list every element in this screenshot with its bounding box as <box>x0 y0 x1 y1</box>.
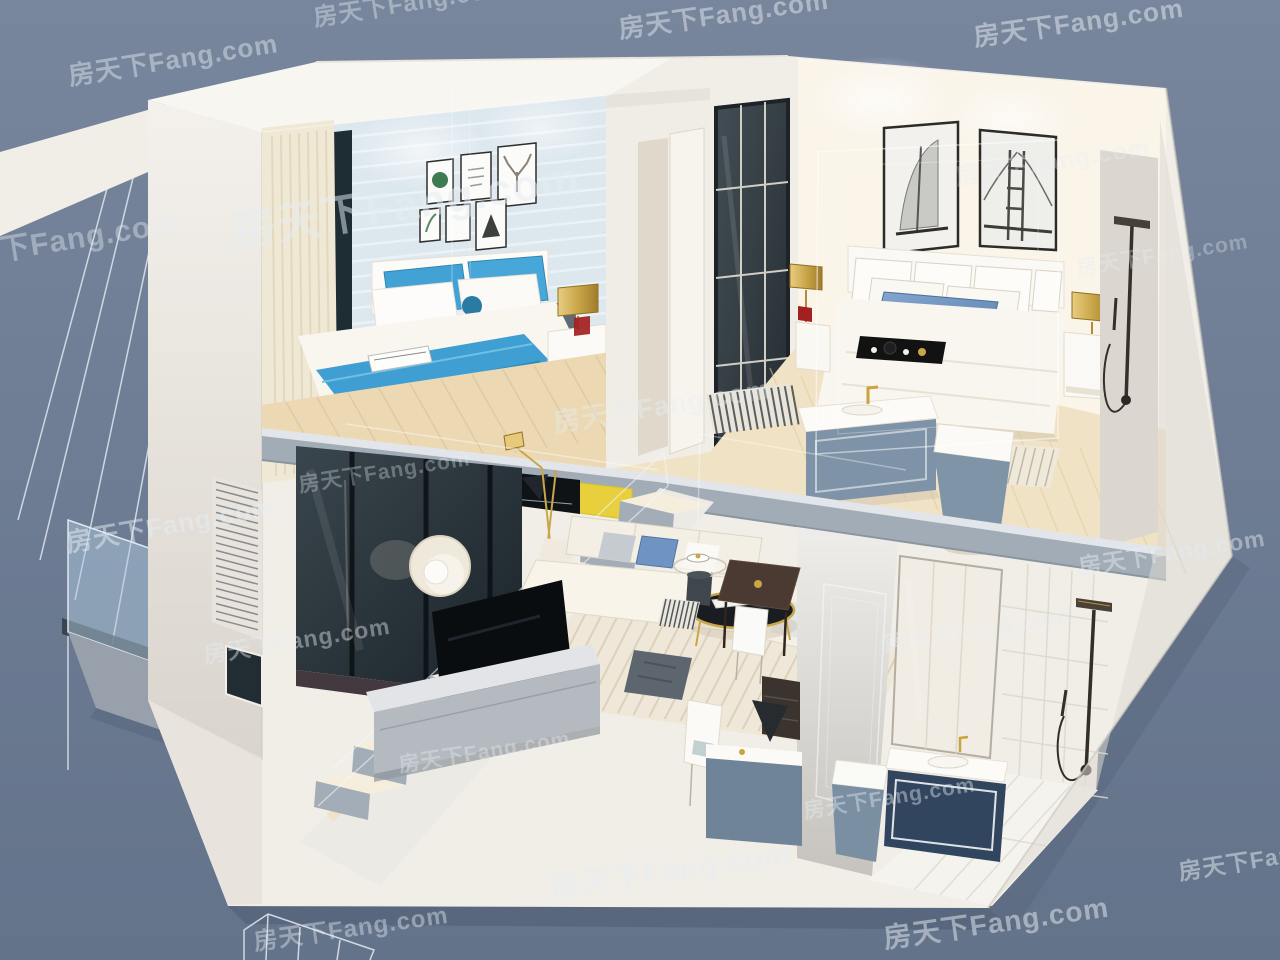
white-dining-chair <box>732 606 768 656</box>
shower-valve <box>1121 395 1131 405</box>
gold-bowl <box>754 580 762 588</box>
gold-item <box>739 749 745 755</box>
counter-front <box>706 758 802 846</box>
scene-svg: 房天下Fang.com 房天下Fang.com 房天下Fang.com 房天下F… <box>0 0 1280 960</box>
stool-top <box>687 571 711 579</box>
teacup <box>903 349 909 355</box>
blue-cushion <box>636 536 678 568</box>
chair-pillow <box>424 560 448 584</box>
red-glass <box>574 316 590 336</box>
basin <box>928 756 968 768</box>
nightstand <box>796 322 830 372</box>
red-glass <box>798 306 812 322</box>
teacup <box>871 347 877 353</box>
screenshot-root: 房天下Fang.com 房天下Fang.com 房天下Fang.com 房天下F… <box>0 0 1280 960</box>
artwork-bridge <box>980 130 1056 250</box>
ensuite-vanity <box>798 387 940 512</box>
fruit <box>696 554 701 559</box>
brass-drum-lamp <box>558 284 598 316</box>
hand-shower <box>1114 298 1116 330</box>
basin <box>842 405 882 415</box>
gold-pot <box>918 348 926 356</box>
teapot <box>884 342 896 354</box>
dark-pouf <box>624 650 692 700</box>
artwork-sailboat <box>884 122 958 254</box>
gray-cushion <box>598 532 636 562</box>
